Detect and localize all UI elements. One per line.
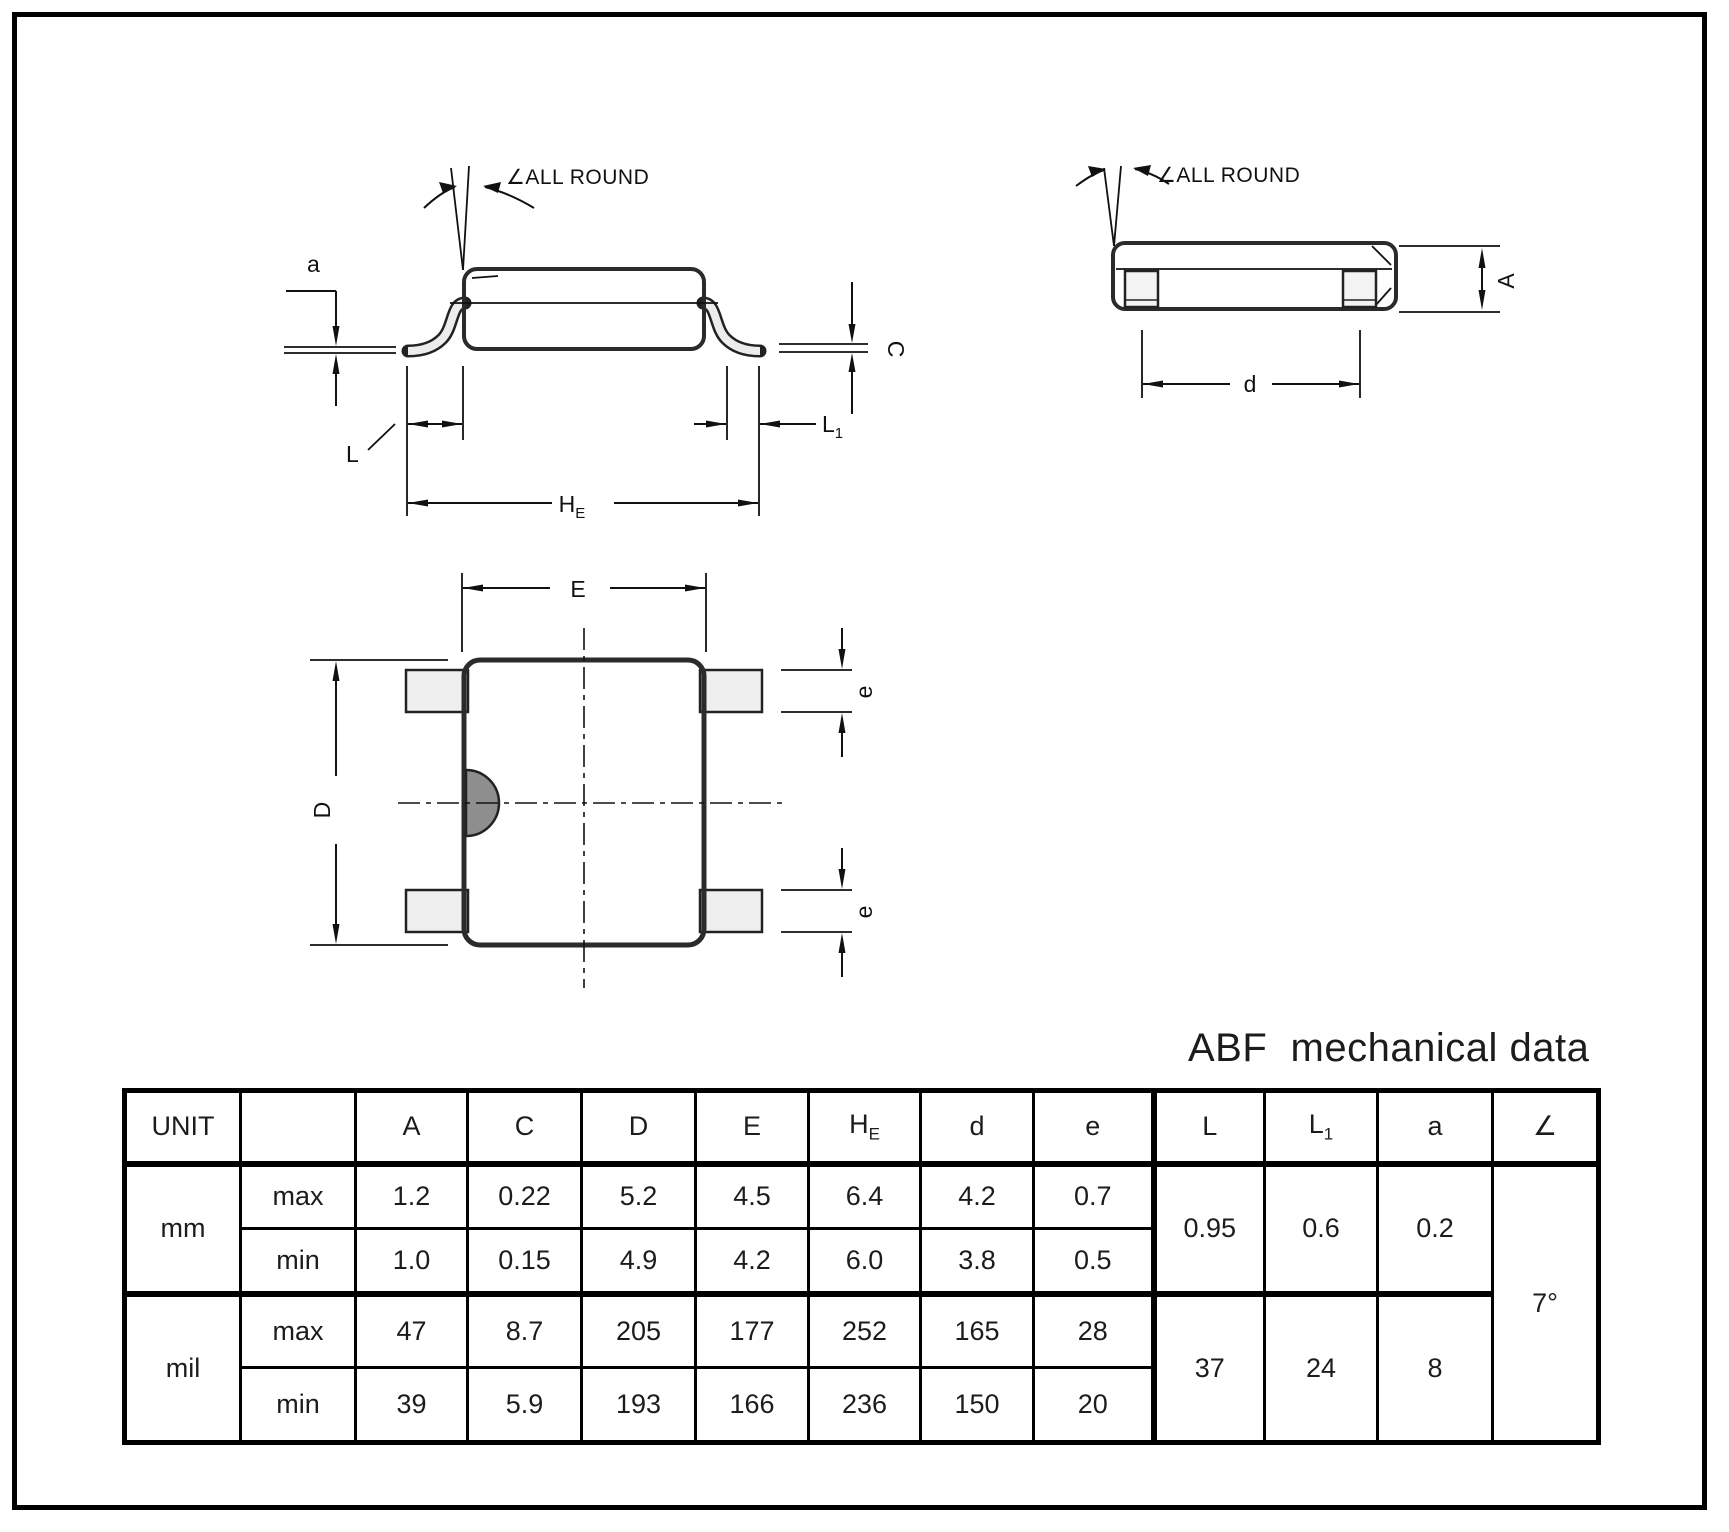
header-d-small: d (921, 1091, 1034, 1164)
mil-max-a: 47 (356, 1294, 468, 1368)
angle-value: 7° (1493, 1164, 1599, 1443)
header-e: E (696, 1091, 809, 1164)
table-title: ABF mechanical data (1188, 1026, 1608, 1071)
dim-l: L (346, 421, 462, 468)
dim-pitch-e-top-label: e (851, 686, 877, 699)
mil-max-d: 205 (582, 1294, 696, 1368)
top-view-lead-bottom-left (406, 890, 468, 932)
side-view-lead-left (408, 303, 465, 351)
end-view: ∠ALL ROUND d A (1076, 164, 1519, 398)
header-a: A (356, 1091, 468, 1164)
angle-annotation-end: ∠ALL ROUND (1076, 164, 1300, 246)
mm-min-e: 4.2 (696, 1229, 809, 1294)
side-view: ∠ALL ROUND a C (284, 166, 909, 522)
mm-min-c: 0.15 (468, 1229, 582, 1294)
mm-max-c: 0.22 (468, 1164, 582, 1229)
all-round-label-end: ∠ALL ROUND (1157, 164, 1300, 187)
side-view-chamfer-mark (472, 276, 498, 278)
mil-min-e: 166 (696, 1368, 809, 1443)
mm-min-a: 1.0 (356, 1229, 468, 1294)
top-view-lead-top-left (406, 670, 468, 712)
mil-max-he: 252 (809, 1294, 921, 1368)
mil-min-dd: 150 (921, 1368, 1034, 1443)
dim-a-label: a (307, 251, 320, 277)
header-a-small: a (1378, 1091, 1493, 1164)
dim-a: a (284, 251, 396, 406)
dim-c-label: C (883, 341, 909, 358)
mm-max-a: 1.2 (356, 1164, 468, 1229)
mm-a: 0.2 (1378, 1164, 1493, 1294)
dim-he: HE (408, 491, 758, 522)
row-mm-max: mm max 1.2 0.22 5.2 4.5 6.4 4.2 0.7 0.95… (125, 1164, 1599, 1229)
dim-l1: L1 (694, 411, 843, 442)
header-e-small: e (1034, 1091, 1154, 1164)
dim-c: C (779, 282, 909, 414)
header-l: L (1154, 1091, 1265, 1164)
mm-l: 0.95 (1154, 1164, 1265, 1294)
top-view-lead-top-right (700, 670, 762, 712)
all-round-label-side: ∠ALL ROUND (506, 166, 649, 189)
header-he: HE (809, 1091, 921, 1164)
dim-width-e-label: E (570, 576, 585, 602)
dim-l-label: L (346, 441, 359, 467)
unit-mil: mil (125, 1294, 241, 1443)
mil-l: 37 (1154, 1294, 1265, 1443)
mil-max-dd: 165 (921, 1294, 1034, 1368)
header-blank (241, 1091, 356, 1164)
mechanical-data-table: UNIT A C D E HE d e L L1 a ∠ mm max 1.2 … (122, 1088, 1601, 1445)
side-view-extension-lines (407, 366, 759, 516)
unit-mm: mm (125, 1164, 241, 1294)
top-view-lead-bottom-right (700, 890, 762, 932)
mil-max-e: 177 (696, 1294, 809, 1368)
mil-a: 8 (1378, 1294, 1493, 1443)
mm-max-label: max (241, 1164, 356, 1229)
mm-min-he: 6.0 (809, 1229, 921, 1294)
mm-min-dd: 3.8 (921, 1229, 1034, 1294)
dim-depth-d-label: D (309, 802, 335, 819)
dim-d: d (1142, 330, 1360, 398)
lead-pad-right (1343, 271, 1376, 307)
mil-min-label: min (241, 1368, 356, 1443)
datasheet-page: ∠ALL ROUND a C (0, 0, 1729, 1532)
top-view: E D e (309, 573, 877, 988)
dim-he-label: HE (559, 491, 586, 522)
mil-max-label: max (241, 1294, 356, 1368)
mm-max-dd: 4.2 (921, 1164, 1034, 1229)
mm-l1: 0.6 (1265, 1164, 1378, 1294)
mm-min-d: 4.9 (582, 1229, 696, 1294)
mil-min-a: 39 (356, 1368, 468, 1443)
mil-max-c: 8.7 (468, 1294, 582, 1368)
header-unit: UNIT (125, 1091, 241, 1164)
dim-height-a: A (1399, 246, 1519, 312)
mm-max-d: 5.2 (582, 1164, 696, 1229)
angle-annotation-side: ∠ALL ROUND (424, 166, 649, 270)
dim-pitch-e-bottom-label: e (851, 906, 877, 919)
dim-height-a-label: A (1493, 273, 1519, 289)
mm-min-ee: 0.5 (1034, 1229, 1154, 1294)
table-header-row: UNIT A C D E HE d e L L1 a ∠ (125, 1091, 1599, 1164)
header-d: D (582, 1091, 696, 1164)
mil-min-ee: 20 (1034, 1368, 1154, 1443)
lead-pad-left (1125, 271, 1158, 307)
side-view-lead-right (703, 303, 760, 351)
side-view-body (464, 269, 704, 349)
dim-l1-label: L1 (822, 411, 843, 442)
header-l1: L1 (1265, 1091, 1378, 1164)
header-angle: ∠ (1493, 1091, 1599, 1164)
header-c: C (468, 1091, 582, 1164)
mil-min-d: 193 (582, 1368, 696, 1443)
mil-min-he: 236 (809, 1368, 921, 1443)
mil-l1: 24 (1265, 1294, 1378, 1443)
mm-max-ee: 0.7 (1034, 1164, 1154, 1229)
mm-max-he: 6.4 (809, 1164, 921, 1229)
mm-min-label: min (241, 1229, 356, 1294)
row-mil-max: mil max 47 8.7 205 177 252 165 28 37 24 … (125, 1294, 1599, 1368)
dim-d-label: d (1244, 371, 1257, 397)
dim-pitch-e-top: e (781, 628, 877, 757)
mil-max-ee: 28 (1034, 1294, 1154, 1368)
mil-min-c: 5.9 (468, 1368, 582, 1443)
dim-pitch-e-bottom: e (781, 848, 877, 977)
mm-max-e: 4.5 (696, 1164, 809, 1229)
